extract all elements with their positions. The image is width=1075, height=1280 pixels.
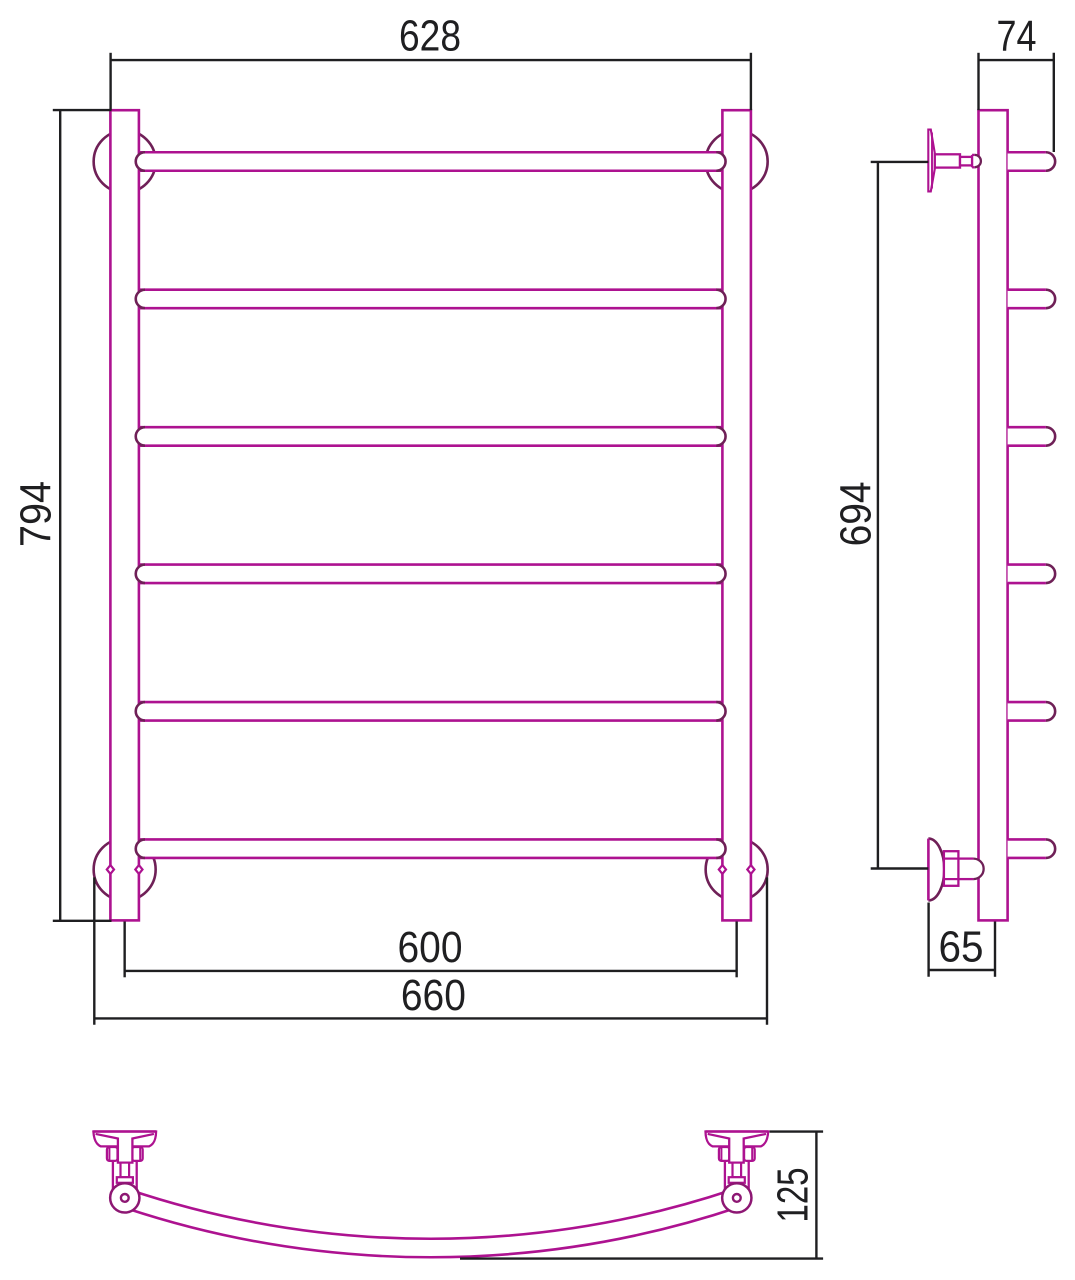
svg-text:628: 628 xyxy=(399,11,461,60)
svg-text:125: 125 xyxy=(769,1168,818,1223)
svg-text:794: 794 xyxy=(11,481,60,547)
svg-text:74: 74 xyxy=(997,12,1037,61)
svg-text:694: 694 xyxy=(831,481,880,546)
svg-text:660: 660 xyxy=(401,971,466,1020)
svg-text:65: 65 xyxy=(939,923,984,972)
svg-text:600: 600 xyxy=(398,923,463,972)
